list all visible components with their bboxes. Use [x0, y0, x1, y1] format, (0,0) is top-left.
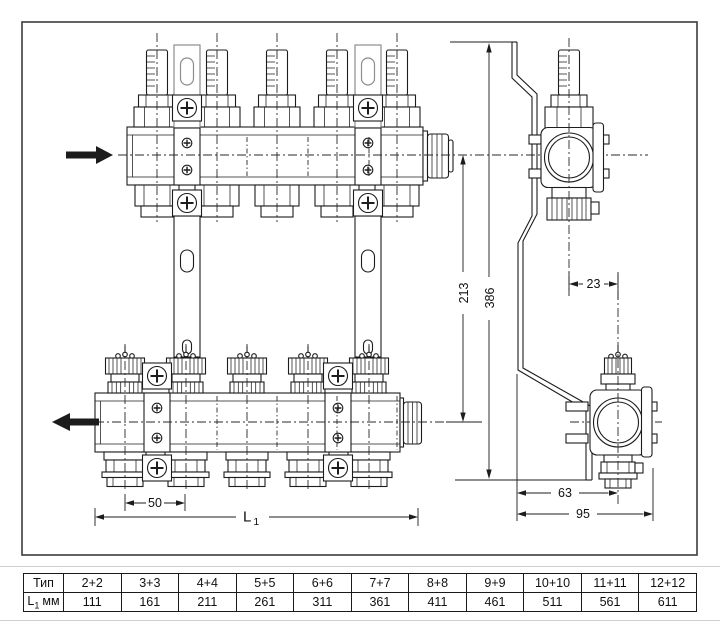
length-cell: 161: [121, 593, 179, 612]
type-cell: 3+3: [121, 574, 179, 593]
length-cell: 611: [639, 593, 697, 612]
dim-95-label: 95: [576, 507, 590, 521]
length-header: L1мм: [24, 593, 64, 612]
dim-50-label: 50: [148, 496, 162, 510]
size-table: Тип 2+2 3+3 4+4 5+5 6+6 7+7 8+8 9+9 10+1…: [23, 573, 697, 612]
dim-l1-label: L1: [243, 509, 259, 529]
length-cell: 311: [294, 593, 352, 612]
dim-386-label: 386: [483, 288, 497, 309]
length-cell: 261: [236, 593, 294, 612]
supply-end-cap: [449, 140, 454, 172]
dim-63-label: 63: [558, 486, 572, 500]
type-cell: 8+8: [409, 574, 467, 593]
mounting-rail-left: [173, 45, 202, 357]
side-return-valve: [566, 345, 657, 488]
type-header: Тип: [24, 574, 64, 593]
type-cell: 5+5: [236, 574, 294, 593]
side-view: 213 386 23 63 95: [446, 38, 657, 521]
type-cell: 7+7: [351, 574, 409, 593]
dim-axis-offset: 23: [569, 272, 618, 300]
dim-bracket-to-axis: 63: [517, 486, 618, 500]
separator-top: [0, 566, 720, 567]
length-cell: 511: [524, 593, 582, 612]
supply-flow-arrow: [66, 146, 113, 164]
type-cell: 12+12: [639, 574, 697, 593]
dim-total-length: L1: [95, 508, 418, 528]
type-cell: 4+4: [179, 574, 237, 593]
technical-drawing: 50 L1: [0, 0, 720, 560]
type-cell: 6+6: [294, 574, 352, 593]
length-row: L1мм 111 161 211 261 311 361 411 461 511…: [24, 593, 697, 612]
length-cell: 561: [581, 593, 639, 612]
length-cell: 111: [64, 593, 122, 612]
dim-center-distance: 213: [446, 155, 482, 422]
mounting-rail-right: [354, 45, 383, 357]
type-cell: 10+10: [524, 574, 582, 593]
type-cell: 9+9: [466, 574, 524, 593]
length-cell: 461: [466, 593, 524, 612]
flowmeter-valve-3: [254, 33, 300, 222]
dim-213-label: 213: [457, 283, 471, 304]
separator-bottom: [0, 620, 720, 621]
type-cell: 11+11: [581, 574, 639, 593]
manifold-drawing-sheet: 50 L1: [0, 0, 720, 636]
length-cell: 411: [409, 593, 467, 612]
dim-outlet-spacing: 50: [125, 494, 185, 511]
length-cell: 361: [351, 593, 409, 612]
length-cell: 211: [179, 593, 237, 612]
type-cell: 2+2: [64, 574, 122, 593]
type-row: Тип 2+2 3+3 4+4 5+5 6+6 7+7 8+8 9+9 10+1…: [24, 574, 697, 593]
dim-23-label: 23: [587, 277, 601, 291]
return-flow-arrow: [52, 413, 99, 431]
